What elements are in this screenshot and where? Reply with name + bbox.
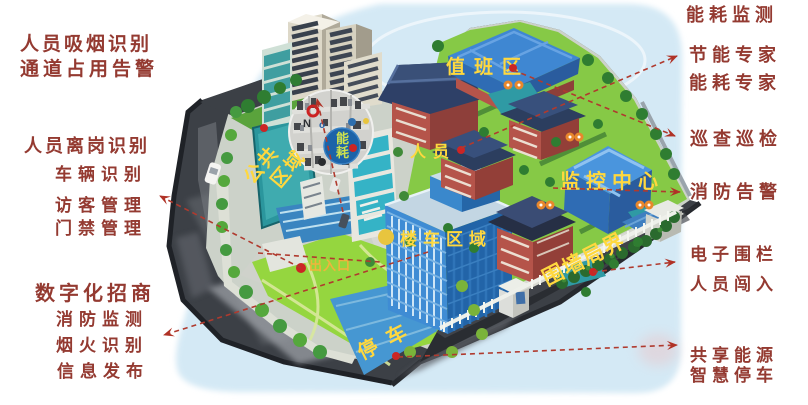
svg-text:烟火识别: 烟火识别 bbox=[56, 335, 148, 355]
svg-text:耗: 耗 bbox=[336, 145, 349, 160]
svg-text:消防监测: 消防监测 bbox=[56, 309, 148, 329]
svg-text:N: N bbox=[303, 118, 311, 130]
svg-text:人员: 人员 bbox=[410, 143, 456, 161]
svg-text:访客管理: 访客管理 bbox=[55, 195, 147, 215]
svg-text:人员闯入: 人员闯入 bbox=[690, 274, 778, 294]
svg-text:共享能源: 共享能源 bbox=[690, 345, 778, 365]
svg-text:出入口: 出入口 bbox=[309, 258, 351, 273]
svg-text:楼车区域: 楼车区域 bbox=[400, 229, 492, 249]
svg-text:数字化招商: 数字化招商 bbox=[35, 281, 155, 305]
svg-text:电子围栏: 电子围栏 bbox=[690, 244, 778, 264]
svg-text:能耗专家: 能耗专家 bbox=[689, 72, 781, 93]
svg-text:人员离岗识别: 人员离岗识别 bbox=[24, 135, 150, 156]
svg-text:通道占用告警: 通道占用告警 bbox=[20, 57, 158, 80]
svg-text:巡查巡检: 巡查巡检 bbox=[690, 128, 782, 149]
svg-text:人员吸烟识别: 人员吸烟识别 bbox=[20, 32, 152, 55]
svg-text:智慧停车: 智慧停车 bbox=[690, 365, 778, 385]
svg-text:节能专家: 节能专家 bbox=[689, 44, 781, 65]
svg-text:门禁管理: 门禁管理 bbox=[55, 218, 147, 238]
svg-text:值班区: 值班区 bbox=[446, 55, 530, 78]
svg-text:能耗监测: 能耗监测 bbox=[686, 4, 778, 25]
svg-text:消防告警: 消防告警 bbox=[690, 181, 782, 202]
svg-text:信息发布: 信息发布 bbox=[57, 361, 149, 381]
svg-text:车辆识别: 车辆识别 bbox=[55, 164, 147, 184]
svg-text:能: 能 bbox=[336, 131, 349, 146]
